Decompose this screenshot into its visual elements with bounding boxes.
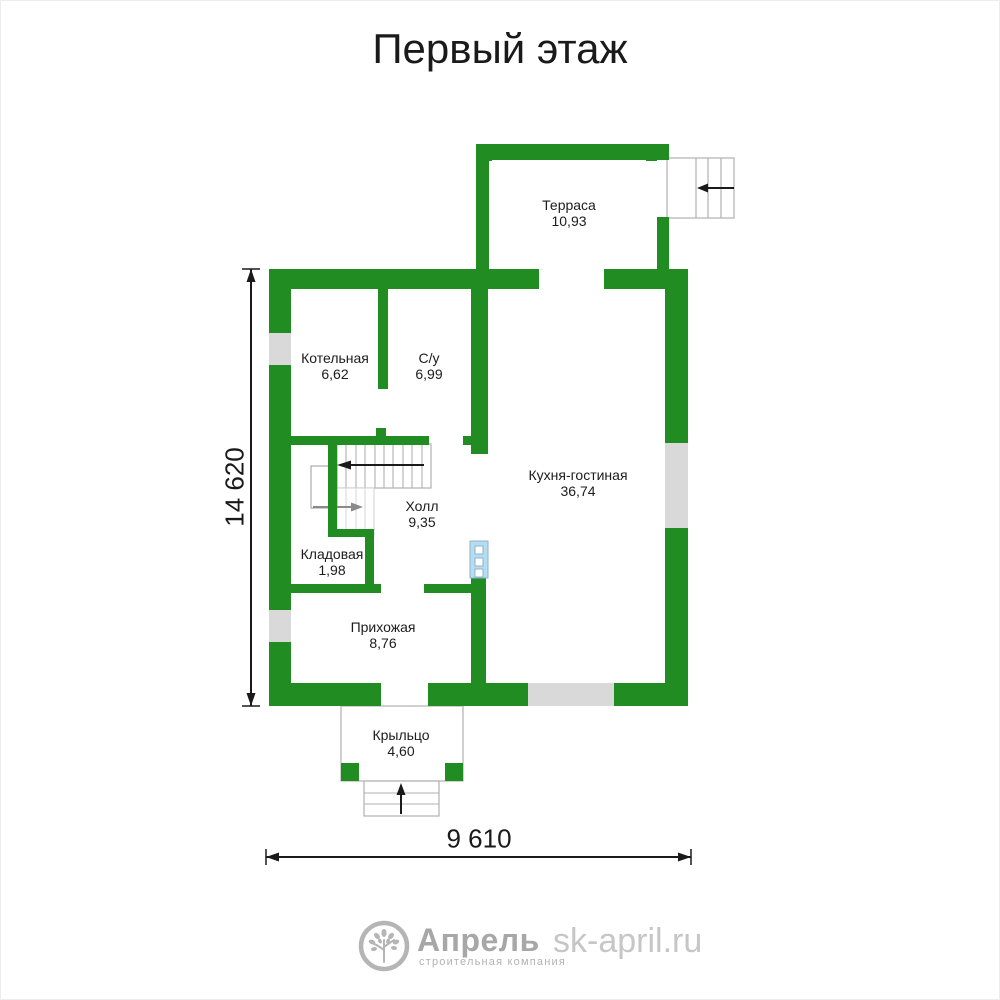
- room-label-porch: Крыльцо 4,60: [372, 727, 429, 759]
- room-label-storage: Кладовая 1,98: [301, 546, 364, 578]
- room-area: 4,60: [372, 743, 429, 759]
- room-area: 6,62: [301, 366, 369, 382]
- window: [665, 443, 688, 528]
- room-name: Крыльцо: [372, 727, 429, 743]
- plumbing-riser-symbol: [470, 541, 488, 578]
- room-area: 9,35: [406, 514, 439, 530]
- height-dimension-label: 14 620: [220, 447, 251, 527]
- room-label-hall: Холл 9,35: [406, 498, 439, 530]
- walls-layer: [269, 144, 688, 781]
- room-area: 10,93: [542, 213, 596, 229]
- width-dimension-label: 9 610: [446, 824, 511, 855]
- room-area: 6,99: [415, 366, 442, 382]
- room-name: Холл: [406, 498, 439, 514]
- room-area: 8,76: [351, 635, 416, 651]
- room-label-boiler: Котельная 6,62: [301, 350, 369, 382]
- room-name: С/у: [415, 350, 442, 366]
- room-label-entry: Прихожая 8,76: [351, 619, 416, 651]
- floor-plan-page: Первый этаж: [0, 0, 1000, 1000]
- window: [528, 683, 614, 706]
- room-name: Терраса: [542, 197, 596, 213]
- room-area: 1,98: [301, 562, 364, 578]
- window: [269, 333, 291, 365]
- room-name: Прихожая: [351, 619, 416, 635]
- room-name: Котельная: [301, 350, 369, 366]
- room-name: Кладовая: [301, 546, 364, 562]
- window: [269, 610, 291, 642]
- room-label-bathroom: С/у 6,99: [415, 350, 442, 382]
- room-label-kitchen: Кухня-гостиная 36,74: [528, 467, 627, 499]
- room-label-terrace: Терраса 10,93: [542, 197, 596, 229]
- room-name: Кухня-гостиная: [528, 467, 627, 483]
- room-area: 36,74: [528, 483, 627, 499]
